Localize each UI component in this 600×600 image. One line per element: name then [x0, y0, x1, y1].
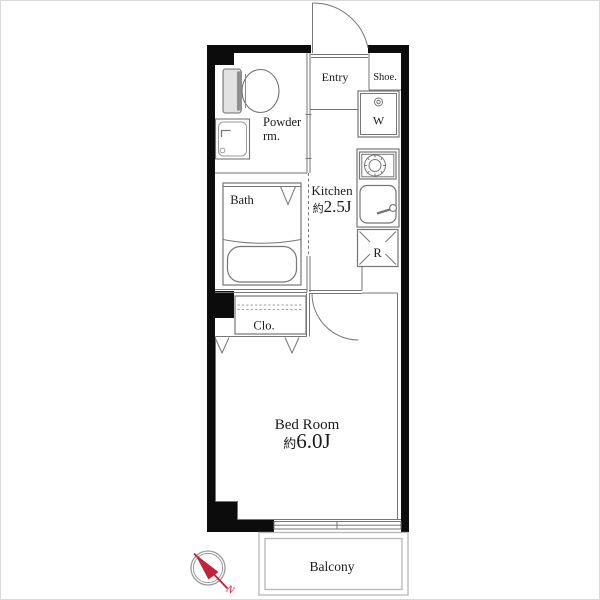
kitchen-area-prefix: 約 — [313, 201, 324, 215]
kitchen-label: Kitchen — [311, 183, 353, 198]
shoe-label: Shoe. — [373, 72, 397, 83]
wall-bottom-left-segment — [238, 519, 274, 532]
wall-block-mid-left — [207, 291, 234, 318]
entry-area: Entry Shoe. — [310, 53, 401, 110]
refrigerator-space: R — [358, 230, 399, 267]
entry-door-arc — [313, 3, 369, 48]
bath-label: Bath — [230, 193, 254, 207]
bedroom-door-arc — [312, 294, 359, 341]
stove — [360, 152, 397, 179]
closet-door-mark-left — [215, 338, 229, 354]
closet-label: Clo. — [253, 319, 274, 333]
wall-block-bottom-left — [207, 501, 238, 532]
bath-folding-door-mark — [281, 187, 296, 205]
wall-left — [207, 45, 215, 532]
toilet — [223, 69, 279, 113]
entry-door — [311, 3, 368, 58]
entry-label: Entry — [322, 70, 349, 84]
kitchen-area-label: 約2.5J — [313, 197, 352, 216]
washer-box: W — [358, 91, 399, 137]
refrigerator-label: R — [373, 246, 382, 260]
sink-basin — [360, 186, 396, 224]
bedroom-area-value: 6.0J — [296, 429, 330, 453]
bath-room: Bath — [215, 183, 307, 293]
toilet-tank-band — [237, 72, 242, 111]
bathtub — [228, 247, 297, 283]
bedroom-area-prefix: 約 — [283, 436, 296, 451]
kitchen-sink — [360, 186, 396, 224]
wall-right — [401, 45, 409, 532]
washer-drain-outer — [375, 98, 383, 106]
powder-room-label-line2: rm. — [263, 129, 280, 143]
stove-burner-ticks — [364, 155, 386, 177]
bath-floor-curve — [223, 240, 301, 244]
balcony-label: Balcony — [310, 559, 355, 574]
bedroom: Bed Room 約6.0J — [216, 293, 402, 520]
kitchen: Kitchen 約2.5J — [307, 149, 399, 292]
window — [274, 522, 401, 530]
washer-label: W — [373, 114, 385, 128]
balcony: Balcony — [259, 533, 408, 596]
washbasin-outer — [216, 119, 250, 159]
stove-burner-inner — [369, 160, 381, 172]
bedroom-door — [309, 266, 362, 340]
floorplan-image: Entry Shoe. Powder rm. Bath — [0, 0, 600, 600]
compass: N — [191, 551, 237, 597]
closet-door-mark-right — [285, 338, 299, 354]
powder-room-label-line1: Powder — [263, 115, 302, 129]
toilet-bowl — [242, 70, 279, 113]
sink-faucet-handle — [377, 209, 391, 213]
kitchen-area-value: 2.5J — [324, 197, 352, 216]
washbasin — [216, 119, 250, 159]
wall-top-left-segment — [215, 45, 311, 53]
washer-drain-inner — [377, 100, 380, 103]
sink-faucet-knob — [390, 205, 397, 212]
